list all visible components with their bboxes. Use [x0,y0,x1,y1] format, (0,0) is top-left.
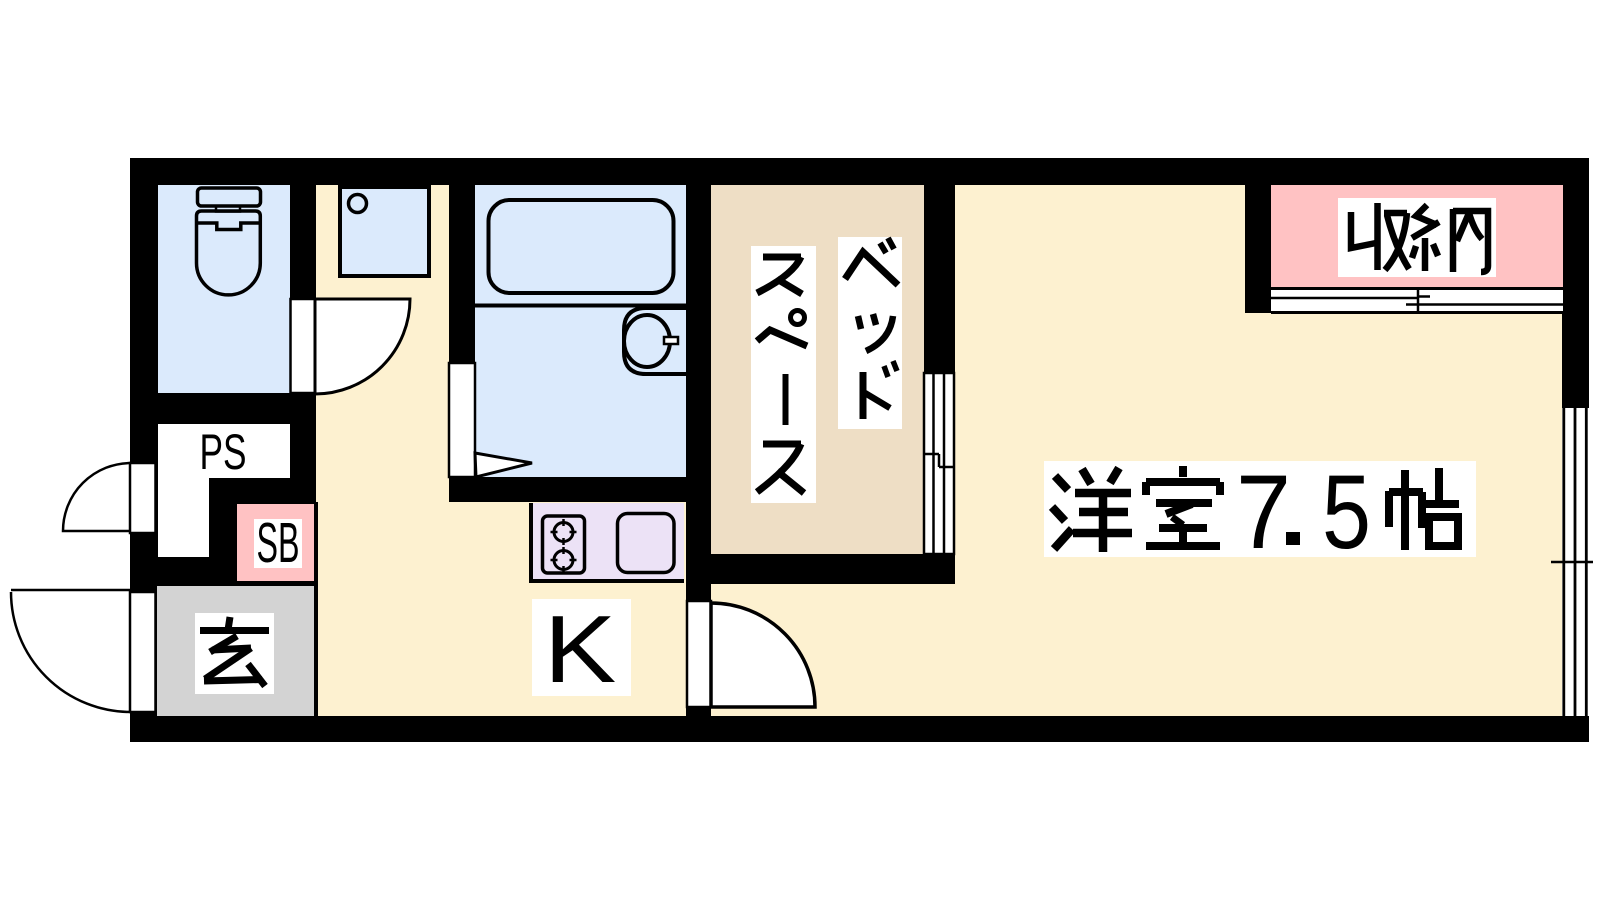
svg-text:5: 5 [1322,454,1371,571]
svg-text:7: 7 [1236,454,1291,571]
svg-text:K: K [544,595,616,703]
svg-text:PS: PS [200,424,247,480]
svg-text:SB: SB [257,511,300,575]
